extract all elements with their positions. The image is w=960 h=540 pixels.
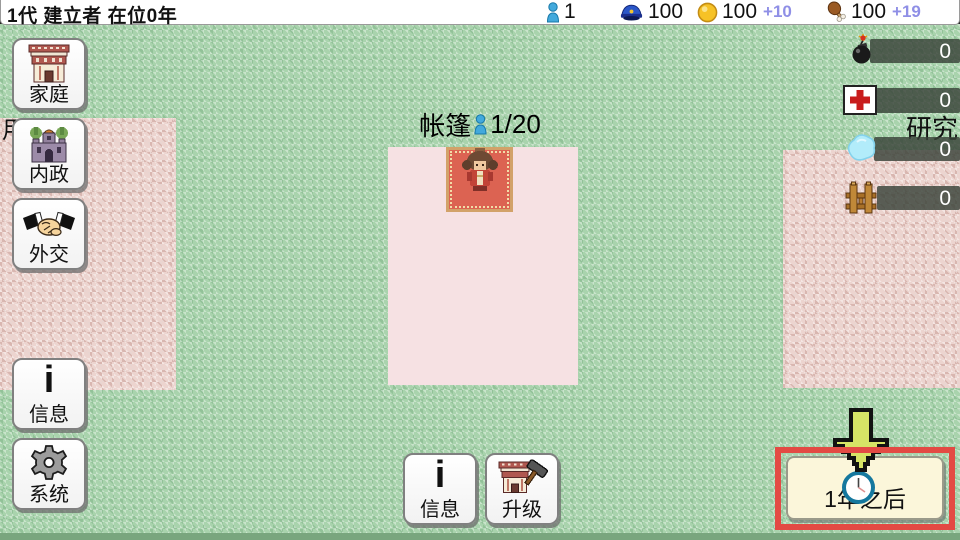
food-readout: 100 +19 [827,0,921,24]
info-icon: i [14,358,84,402]
upgrade-hammer-icon [487,459,557,501]
menu-diplomacy-label: 外交 [29,244,69,266]
menu-info-label: 信息 [29,404,69,426]
gear-icon [14,444,84,488]
info-icon: i [405,453,475,497]
research-value: 0 [939,188,960,209]
population-value: 1 [564,0,576,24]
map-bottom-edge [0,533,960,540]
gold-value: 100 [722,0,757,24]
food-value: 100 [851,0,886,24]
medical-icon[interactable] [843,85,877,115]
family-building-icon [14,44,84,84]
gold-readout: 100 +10 [697,0,792,24]
soldiers-readout: 100 [619,0,683,24]
research-bar-water: 0 [874,137,960,161]
tent-info-label: 信息 [420,499,460,521]
population-readout: 1 [546,0,576,24]
tent-upgrade-label: 升级 [502,499,542,521]
soldier-cap-icon [619,3,644,21]
population-icon [474,114,487,135]
tent-name: 帐篷 [419,106,471,143]
tent-info-button[interactable]: i 信息 [403,453,477,525]
tent-caption: 帐篷 1/20 [380,106,580,143]
attention-arrow-icon [821,408,901,480]
menu-family-label: 家庭 [29,84,69,106]
fence-icon[interactable] [844,181,878,216]
population-icon [546,2,560,23]
castle-icon [14,124,84,164]
research-value: 0 [939,90,960,111]
food-icon [827,1,847,23]
status-bar: 1代 建立者 在位0年 1 100 [0,0,960,25]
research-value: 0 [939,41,960,62]
gold-delta: +10 [763,2,792,22]
gold-coin-icon [697,2,718,23]
menu-diplomacy-button[interactable]: 外交 [12,198,86,270]
tent-capacity: 1/20 [490,109,541,140]
food-delta: +19 [892,2,921,22]
menu-family-button[interactable]: 家庭 [12,38,86,110]
handshake-icon [14,210,84,244]
research-bar-medical: 0 [876,88,960,113]
menu-system-button[interactable]: 系统 [12,438,86,510]
soldiers-value: 100 [648,0,683,24]
menu-info-button[interactable]: i 信息 [12,358,86,430]
menu-internal-label: 内政 [29,164,69,186]
ruler-title: 1代 建立者 在位0年 [7,1,177,28]
water-icon[interactable] [845,133,876,163]
research-value: 0 [939,139,960,160]
tent-upgrade-button[interactable]: 升级 [485,453,559,525]
menu-internal-button[interactable]: 内政 [12,118,86,190]
game-screen: 用地 研究 帐篷 1/20 1代 建立者 在位0年 1 [0,0,960,540]
bomb-icon[interactable] [848,33,878,65]
ruler-sprite[interactable] [461,148,499,198]
research-bar-wood: 0 [877,186,960,210]
research-bar-bomb: 0 [870,39,960,63]
